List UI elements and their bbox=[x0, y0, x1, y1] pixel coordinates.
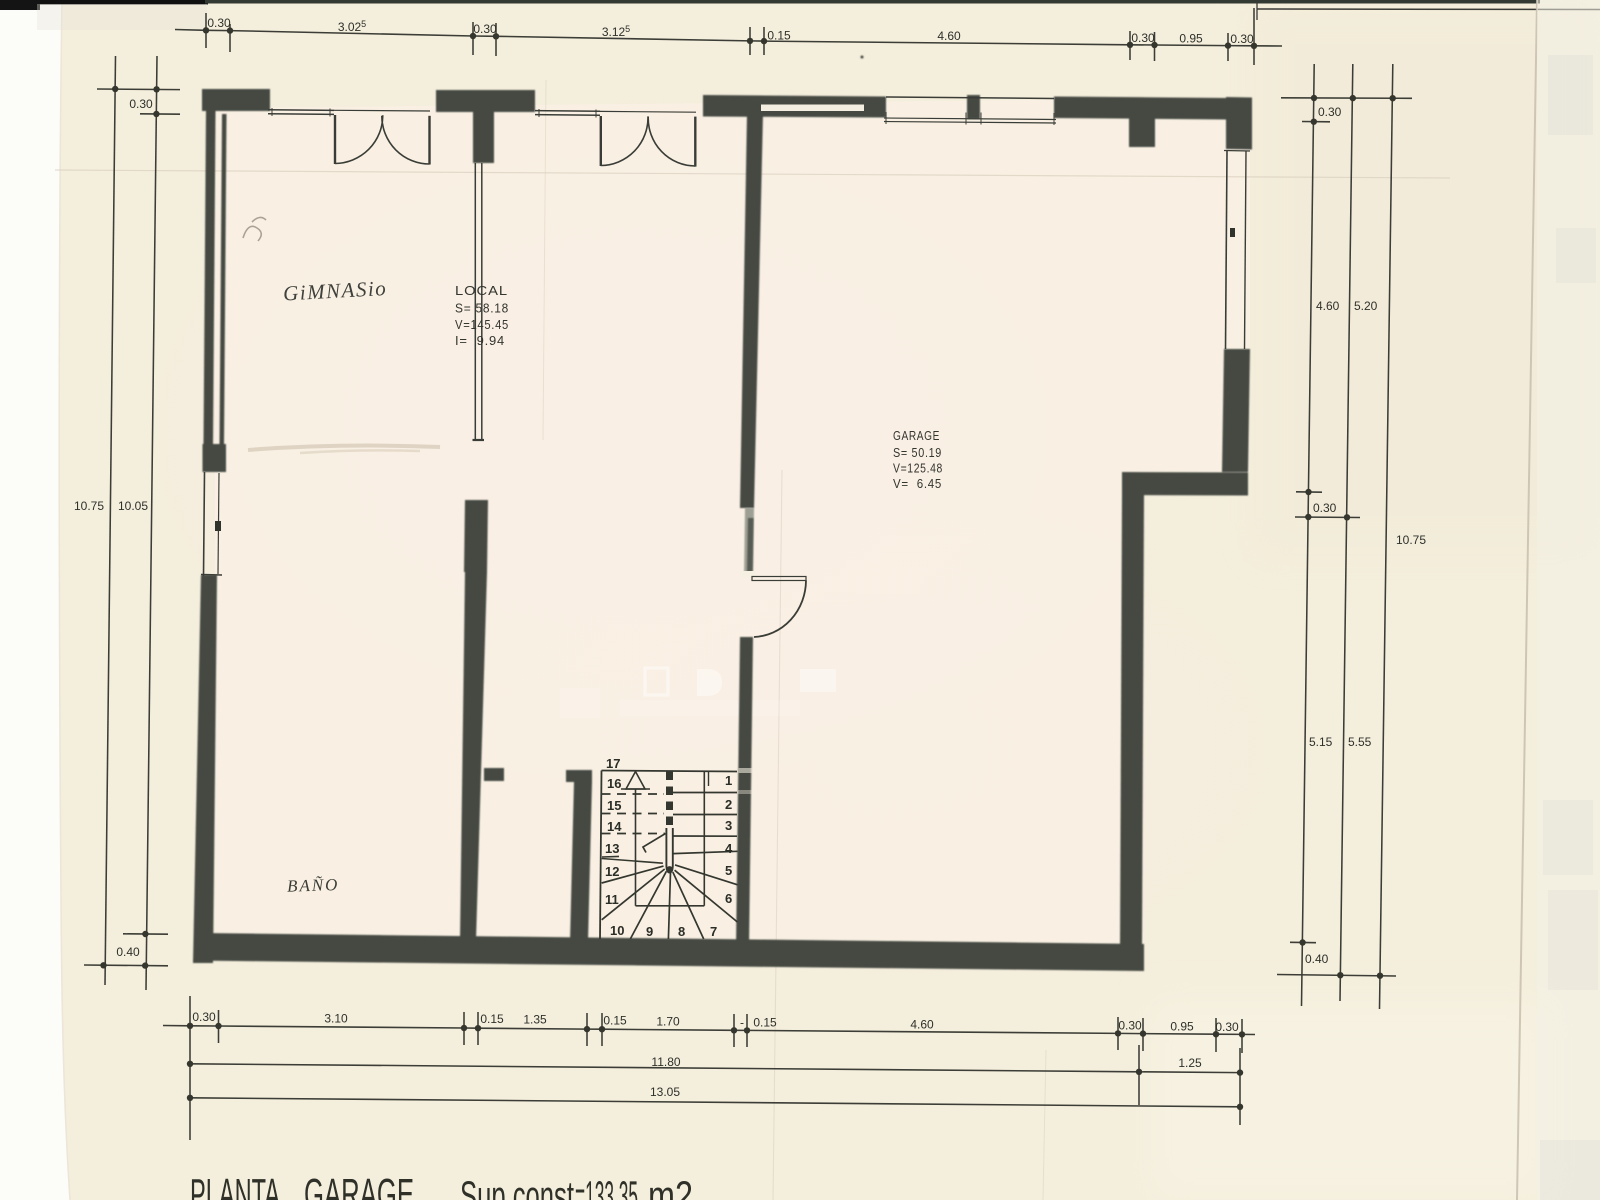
svg-text:1.35: 1.35 bbox=[523, 1013, 547, 1027]
svg-text:3: 3 bbox=[725, 818, 732, 833]
svg-text:1.25: 1.25 bbox=[1178, 1056, 1202, 1070]
svg-text:6: 6 bbox=[725, 891, 732, 906]
svg-text:8: 8 bbox=[678, 924, 685, 939]
svg-text:0.30: 0.30 bbox=[1230, 32, 1254, 46]
svg-text:0.15: 0.15 bbox=[603, 1014, 627, 1028]
svg-text:0.40: 0.40 bbox=[116, 945, 140, 959]
svg-text:S= 50.19: S= 50.19 bbox=[893, 445, 942, 460]
svg-text:0.30: 0.30 bbox=[1131, 31, 1155, 45]
svg-text:10: 10 bbox=[610, 923, 624, 938]
svg-text:GARAGE: GARAGE bbox=[304, 1170, 414, 1200]
svg-text:16: 16 bbox=[607, 776, 621, 791]
svg-text:5.15: 5.15 bbox=[1309, 735, 1333, 749]
svg-text:m2: m2 bbox=[648, 1172, 693, 1200]
svg-text:PLANTA: PLANTA bbox=[190, 1170, 280, 1200]
svg-text:5.20: 5.20 bbox=[1354, 299, 1378, 313]
svg-text:V=125.48: V=125.48 bbox=[893, 461, 943, 476]
svg-text:10.75: 10.75 bbox=[74, 499, 104, 513]
svg-text:-: - bbox=[740, 1016, 744, 1030]
svg-text:11: 11 bbox=[605, 892, 619, 907]
svg-text:0.30: 0.30 bbox=[473, 22, 497, 36]
svg-text:0.95: 0.95 bbox=[1170, 1020, 1194, 1034]
svg-text:GARAGE: GARAGE bbox=[893, 428, 940, 443]
svg-text:9: 9 bbox=[646, 924, 653, 939]
svg-text:1: 1 bbox=[725, 773, 732, 788]
svg-text:12: 12 bbox=[605, 864, 619, 879]
svg-text:BAÑO: BAÑO bbox=[287, 875, 340, 896]
svg-text:0.30: 0.30 bbox=[1313, 501, 1337, 515]
svg-text:0.30: 0.30 bbox=[192, 1010, 216, 1024]
svg-text:=133,35: =133,35 bbox=[575, 1172, 638, 1200]
svg-text:5: 5 bbox=[725, 863, 732, 878]
svg-text:13: 13 bbox=[605, 841, 619, 856]
svg-text:1.70: 1.70 bbox=[656, 1015, 680, 1029]
svg-text:10.05: 10.05 bbox=[118, 499, 148, 513]
svg-text:0.30: 0.30 bbox=[1118, 1019, 1142, 1033]
svg-text:4.60: 4.60 bbox=[1316, 299, 1340, 313]
svg-text:0.15: 0.15 bbox=[753, 1016, 777, 1030]
svg-text:0.30: 0.30 bbox=[1215, 1020, 1239, 1034]
svg-text:2: 2 bbox=[725, 797, 732, 812]
svg-text:0.95: 0.95 bbox=[1179, 32, 1203, 46]
svg-text:17: 17 bbox=[606, 756, 620, 771]
svg-text:7: 7 bbox=[710, 924, 717, 939]
svg-text:3.10: 3.10 bbox=[324, 1012, 348, 1026]
svg-text:4: 4 bbox=[725, 841, 733, 856]
svg-text:0.30: 0.30 bbox=[1318, 105, 1342, 119]
svg-text:V=145.45: V=145.45 bbox=[455, 317, 509, 332]
svg-text:I= 9.94: I= 9.94 bbox=[455, 333, 505, 348]
svg-text:0.15: 0.15 bbox=[480, 1012, 504, 1026]
svg-text:0.30: 0.30 bbox=[207, 16, 231, 30]
svg-text:Sup const: Sup const bbox=[460, 1172, 574, 1200]
svg-text:V= 6.45: V= 6.45 bbox=[893, 476, 942, 491]
svg-text:S= 58.18: S= 58.18 bbox=[455, 301, 509, 316]
svg-text:15: 15 bbox=[607, 798, 621, 813]
svg-text:10.75: 10.75 bbox=[1396, 533, 1426, 547]
svg-text:4.60: 4.60 bbox=[910, 1018, 934, 1032]
svg-text:4.60: 4.60 bbox=[937, 29, 961, 43]
svg-text:13.05: 13.05 bbox=[650, 1085, 680, 1099]
svg-text:0.40: 0.40 bbox=[1305, 952, 1329, 966]
svg-text:11.80: 11.80 bbox=[651, 1055, 680, 1069]
svg-text:0.15: 0.15 bbox=[767, 29, 791, 43]
svg-text:LOCAL: LOCAL bbox=[455, 283, 508, 298]
svg-text:5.55: 5.55 bbox=[1348, 735, 1372, 749]
svg-text:14: 14 bbox=[607, 819, 622, 834]
svg-text:0.30: 0.30 bbox=[129, 97, 153, 111]
